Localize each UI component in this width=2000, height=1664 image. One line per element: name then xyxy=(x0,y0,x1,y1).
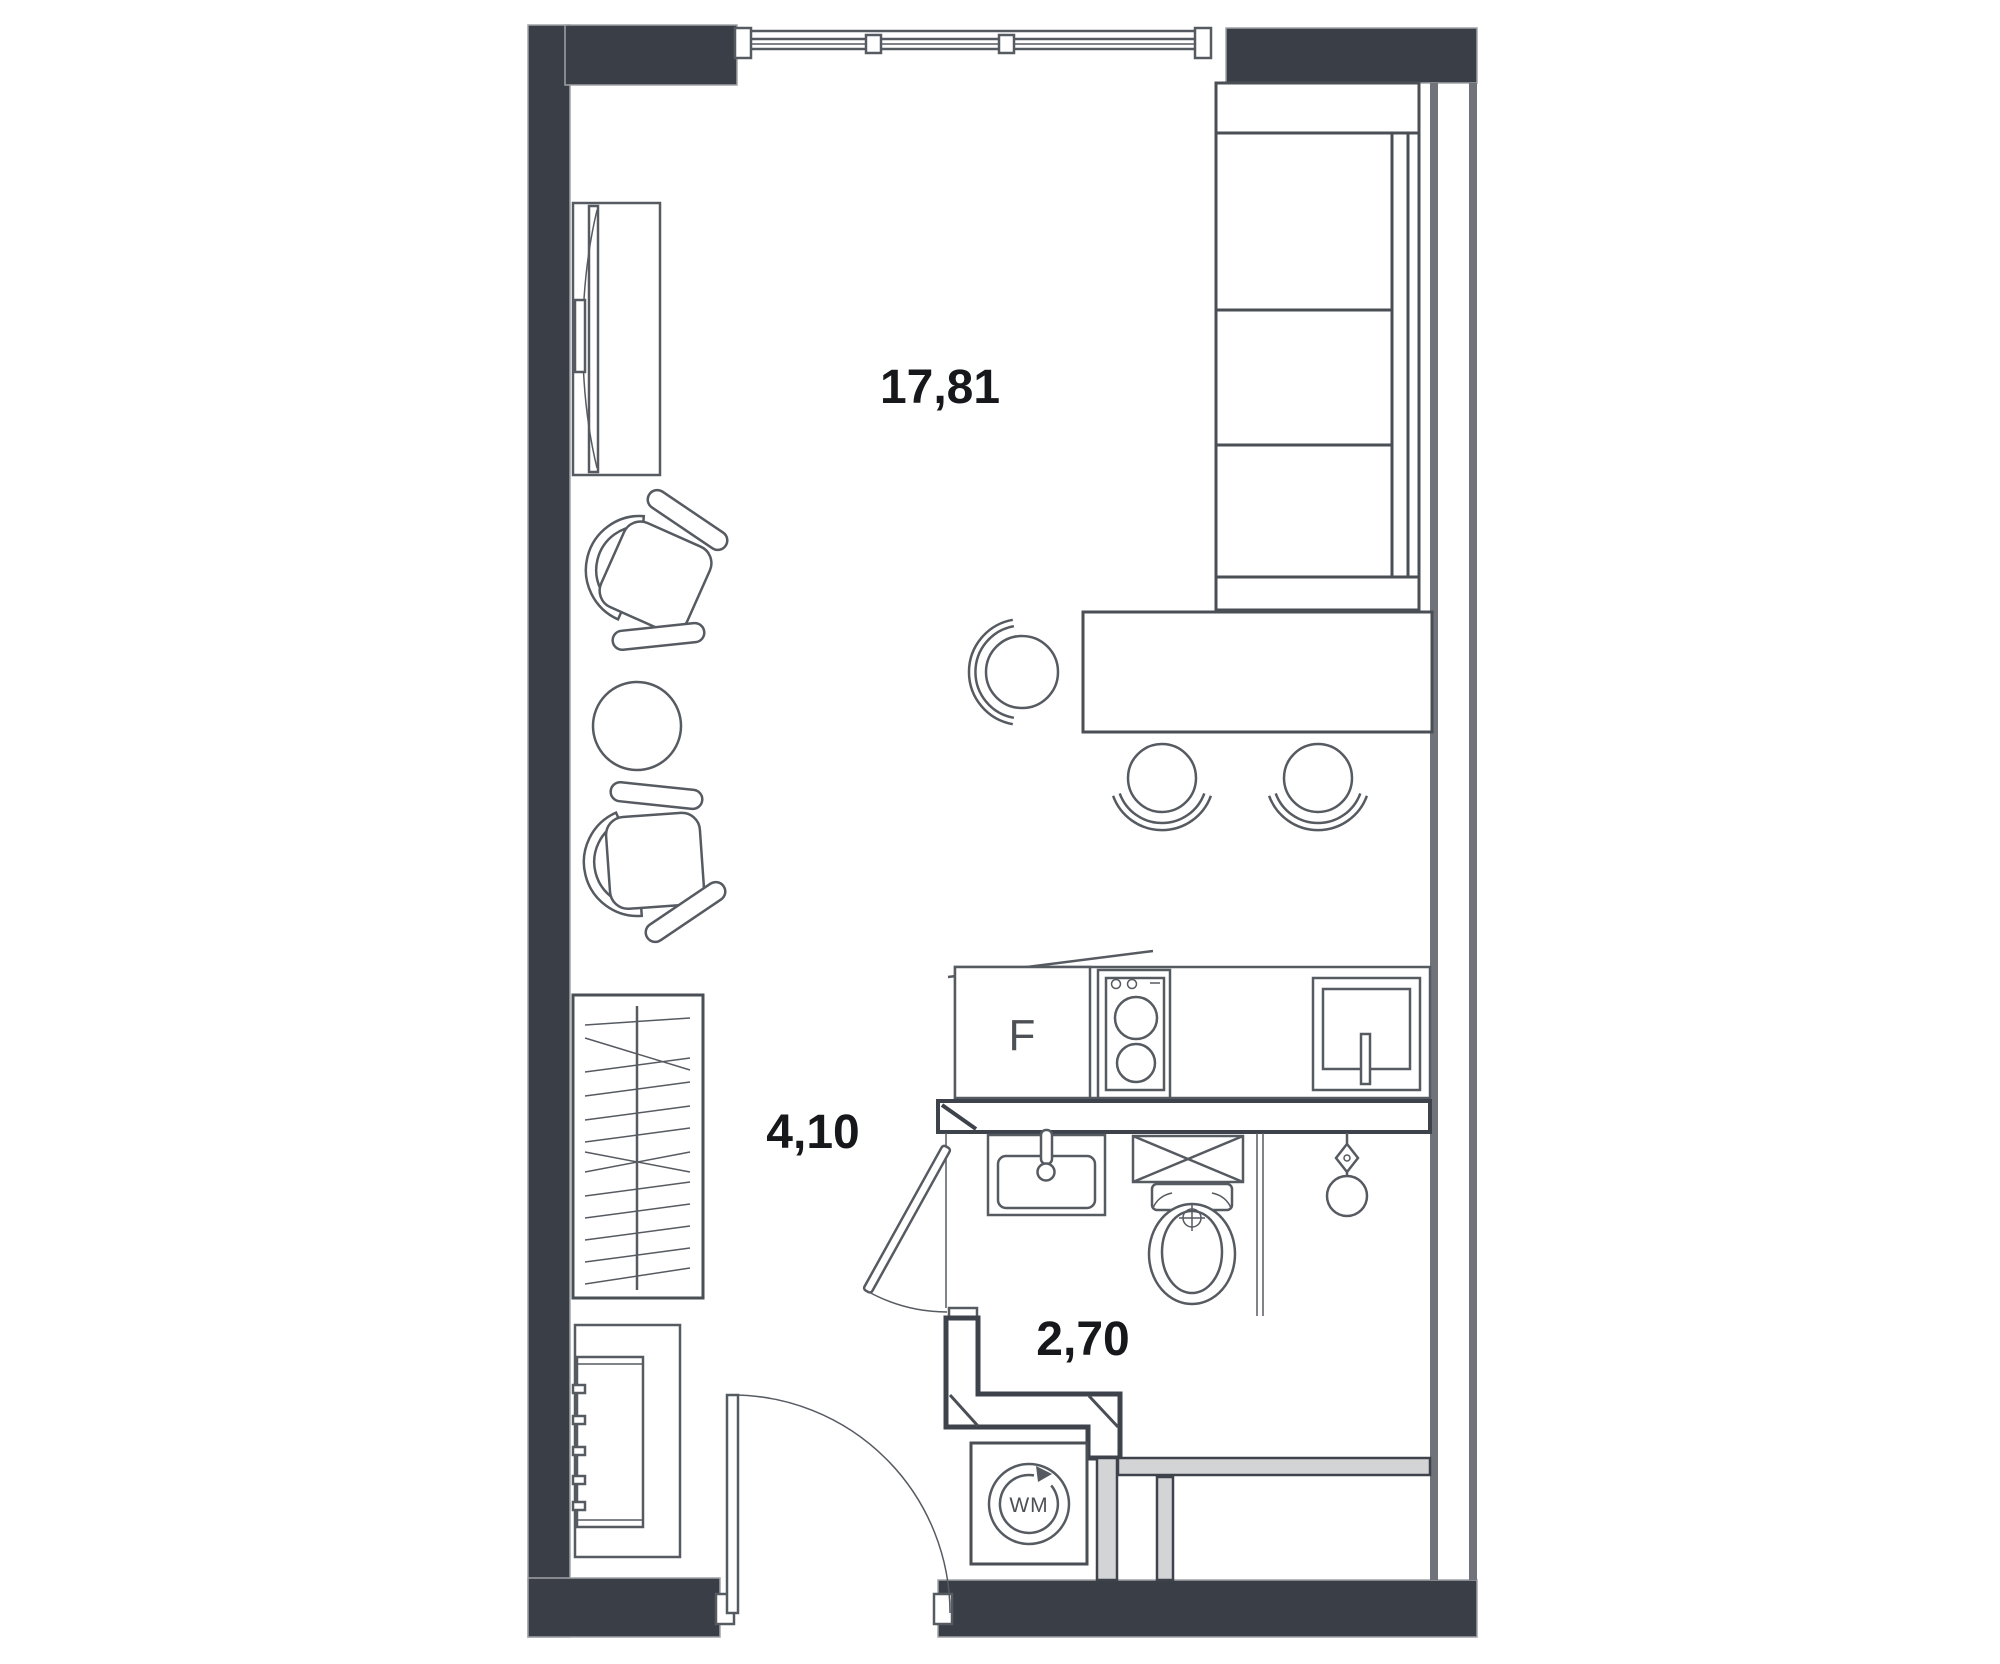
entrance-door-swing xyxy=(732,1395,950,1613)
wall-top-left xyxy=(565,25,737,85)
armchair-bottom xyxy=(565,760,737,957)
stove xyxy=(1098,970,1170,1098)
floor-plan: 17,81 F xyxy=(0,0,2000,1664)
toilet xyxy=(1149,1184,1235,1304)
shower xyxy=(1257,1133,1367,1316)
wall-right-outer xyxy=(1469,83,1477,1580)
bathroom-sink xyxy=(988,1130,1105,1215)
window xyxy=(735,28,1211,58)
bathroom-door-leaf xyxy=(863,1145,951,1294)
wall-bottom-left xyxy=(528,1578,720,1637)
hallway-area-label: 4,10 xyxy=(766,1106,859,1159)
wardrobe xyxy=(573,995,703,1298)
towel-radiator xyxy=(1133,1136,1243,1182)
entrance-door xyxy=(716,1395,952,1624)
bathroom-area-label: 2,70 xyxy=(1036,1313,1129,1366)
kitchen-faucet xyxy=(1361,1034,1370,1084)
armchair-top xyxy=(567,475,739,672)
bathroom-top-wall xyxy=(938,1101,1430,1132)
shower-valve xyxy=(1336,1144,1358,1172)
window-jamb-right xyxy=(1195,28,1211,58)
partition-post-2 xyxy=(1157,1477,1173,1580)
washing-machine: WM xyxy=(971,1443,1087,1564)
burner-1 xyxy=(1115,997,1157,1039)
bathroom-faucet xyxy=(1041,1130,1052,1164)
window-mullion-2 xyxy=(999,35,1014,53)
fridge-label: F xyxy=(1009,1011,1036,1060)
dining-table xyxy=(1083,612,1432,732)
tv-unit xyxy=(573,203,660,475)
wall-bottom-right xyxy=(938,1580,1477,1637)
fridge: F xyxy=(955,967,1090,1098)
table-chair-2 xyxy=(1269,744,1367,830)
bathroom-bottom-partition xyxy=(1118,1458,1430,1475)
bathroom-door-swing xyxy=(867,1291,947,1312)
bathroom: WM 2,70 xyxy=(863,1101,1430,1580)
shower-drain xyxy=(1327,1176,1367,1216)
desk-chair-left xyxy=(969,620,1058,724)
washing-machine-label: WM xyxy=(1009,1494,1048,1517)
partition-post-1 xyxy=(1097,1458,1117,1580)
wall-left xyxy=(528,25,570,1637)
living-room: 17,81 xyxy=(565,83,1432,957)
window-jamb-left xyxy=(735,28,751,58)
hallway: 4,10 xyxy=(573,995,952,1624)
table-chair-1 xyxy=(1113,744,1211,830)
bathroom-door xyxy=(863,1133,977,1319)
kitchen: F xyxy=(948,951,1430,1098)
wall-top-right xyxy=(1226,28,1477,83)
entrance-door-leaf xyxy=(727,1395,738,1613)
shoe-cabinet xyxy=(573,1325,680,1557)
burner-2 xyxy=(1117,1044,1155,1082)
side-table xyxy=(593,682,681,770)
wall-right-inner xyxy=(1430,83,1438,1580)
tv-mount xyxy=(575,300,585,372)
window-mullion-1 xyxy=(866,35,881,53)
living-room-area-label: 17,81 xyxy=(880,361,1000,414)
sofa xyxy=(1216,83,1419,610)
floor-plan-page: 17,81 F xyxy=(0,0,2000,1664)
kitchen-sink xyxy=(1313,978,1420,1090)
